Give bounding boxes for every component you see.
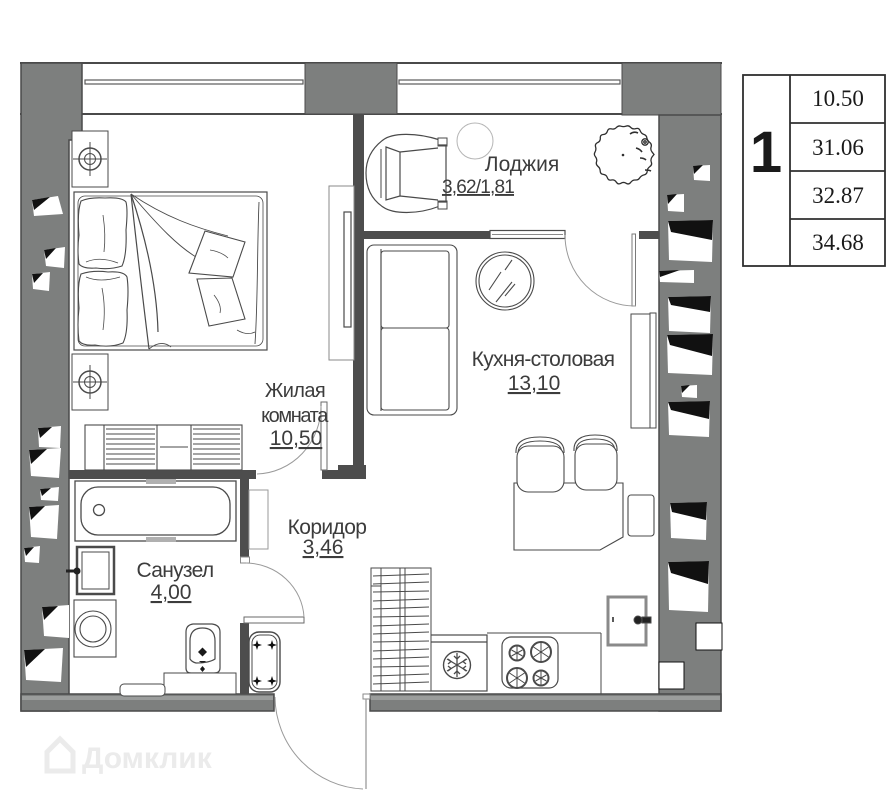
- svg-text:Домклик: Домклик: [82, 742, 213, 775]
- svg-text:Кухня-столовая: Кухня-столовая: [472, 348, 615, 371]
- svg-text:Лоджия: Лоджия: [485, 153, 559, 176]
- svg-text:4,00: 4,00: [151, 581, 192, 604]
- svg-text:3,62/1,81: 3,62/1,81: [442, 177, 514, 198]
- svg-text:комната: комната: [261, 405, 329, 427]
- svg-text:Санузел: Санузел: [137, 559, 214, 582]
- svg-text:13,10: 13,10: [508, 372, 561, 395]
- svg-text:34.68: 34.68: [812, 230, 864, 255]
- svg-text:10.50: 10.50: [812, 86, 864, 111]
- svg-text:32.87: 32.87: [812, 183, 864, 208]
- svg-text:Жилая: Жилая: [265, 380, 325, 402]
- svg-text:31.06: 31.06: [812, 135, 864, 160]
- svg-text:3,46: 3,46: [303, 536, 344, 559]
- svg-text:10,50: 10,50: [270, 427, 323, 450]
- svg-text:1: 1: [750, 120, 782, 185]
